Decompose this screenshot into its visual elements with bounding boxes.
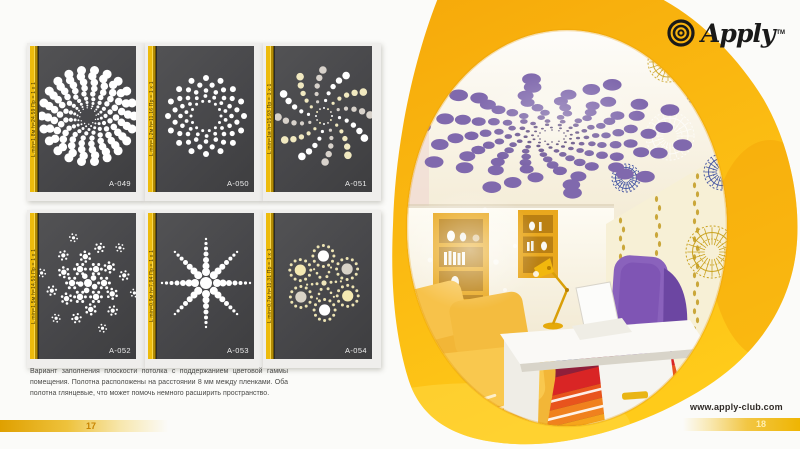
pattern-code: A-052 [109,346,131,355]
spec-label: L min=1м h=15,93 Пр = 1 х 1 [266,46,274,192]
pattern-code: A-053 [227,346,249,355]
spec-stripe: L min=1,2м h=11,16 Пр = 1 х 1 [148,46,157,192]
spec-label: L min=1,5м h=14,51 Пр = 1 х 1 [30,213,38,359]
trademark-symbol: TM [776,30,785,36]
spec-stripe: L min=0,7м h=11,31 Пр = 1 х 1 [266,213,275,359]
dot-pattern-preview [30,213,136,359]
spec-label: L min=1,2м h=11,16 Пр = 1 х 1 [148,46,156,192]
page-number-bar-left: 17 [0,420,168,432]
pattern-panel: L min=1,8м h=24,59 Пр = 1 х 1 A-049 [30,46,136,192]
brand-name: Apply [701,19,774,48]
pattern-card: L min=1,5м h=14,51 Пр = 1 х 1 A-052 [27,210,145,368]
pattern-panel: L min=1м h=15,93 Пр = 1 х 1 A-051 [266,46,372,192]
dot-pattern-preview [266,213,372,359]
pattern-panel: L min=0,9м h=7,94 Пр = 1 х 1 A-053 [148,213,254,359]
pattern-panel: L min=0,7м h=11,31 Пр = 1 х 1 A-054 [266,213,372,359]
dot-pattern-preview [148,213,254,359]
pattern-panel: L min=1,2м h=11,16 Пр = 1 х 1 A-050 [148,46,254,192]
room-photo-artwork [380,0,800,449]
dot-pattern-preview [266,46,372,192]
spec-stripe: L min=0,9м h=7,94 Пр = 1 х 1 [148,213,157,359]
pattern-card: L min=0,7м h=11,31 Пр = 1 х 1 A-054 [263,210,381,368]
dot-pattern-preview [30,46,136,192]
spec-label: L min=1,8м h=24,59 Пр = 1 х 1 [30,46,38,192]
pattern-code: A-050 [227,179,249,188]
pattern-card: L min=1м h=15,93 Пр = 1 х 1 A-051 [263,43,381,201]
description-text: Вариант заполнения плоскости потолка с п… [30,366,288,399]
concentric-rings-icon [666,18,696,48]
spec-label: L min=0,9м h=7,94 Пр = 1 х 1 [148,213,156,359]
page-number-left: 17 [86,421,96,431]
pattern-code: A-054 [345,346,367,355]
spec-stripe: L min=1м h=15,93 Пр = 1 х 1 [266,46,275,192]
pattern-code: A-049 [109,179,131,188]
pattern-panel: L min=1,5м h=14,51 Пр = 1 х 1 A-052 [30,213,136,359]
pattern-code: A-051 [345,179,367,188]
pattern-card: L min=1,2м h=11,16 Пр = 1 х 1 A-050 [145,43,263,201]
brand-logo: Apply TM [666,12,796,54]
spec-label: L min=0,7м h=11,31 Пр = 1 х 1 [266,213,274,359]
dot-pattern-preview [148,46,254,192]
catalog-spread: L min=1,8м h=24,59 Пр = 1 х 1 A-049 L mi… [0,0,800,449]
spec-stripe: L min=1,8м h=24,59 Пр = 1 х 1 [30,46,39,192]
pattern-card: L min=1,8м h=24,59 Пр = 1 х 1 A-049 [27,43,145,201]
pattern-card: L min=0,9м h=7,94 Пр = 1 х 1 A-053 [145,210,263,368]
spec-stripe: L min=1,5м h=14,51 Пр = 1 х 1 [30,213,39,359]
